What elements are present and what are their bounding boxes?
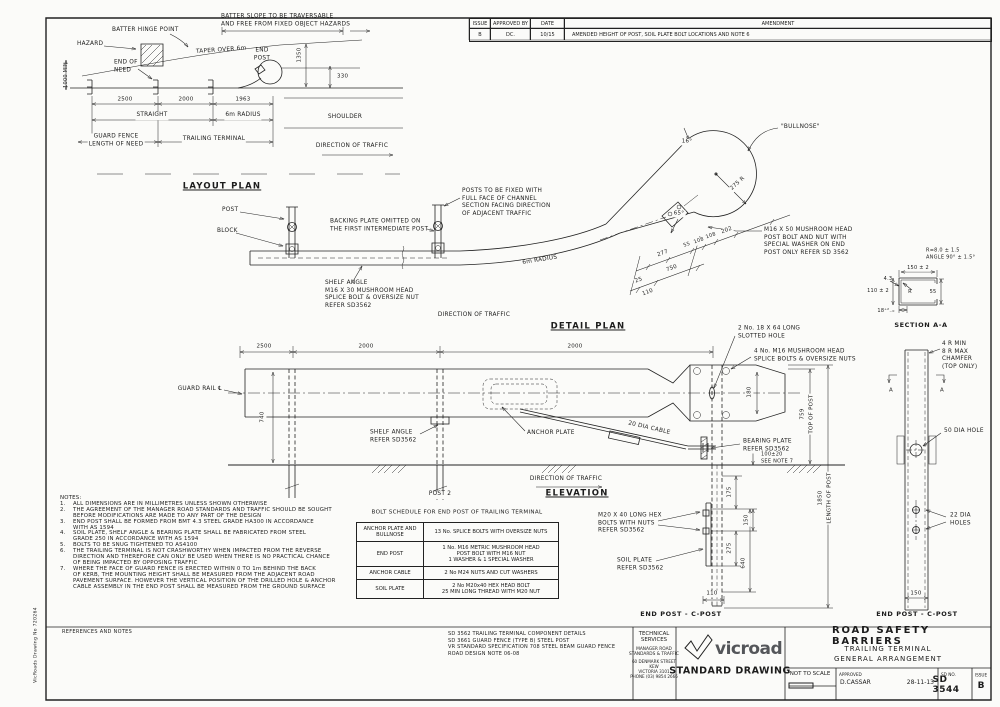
end-post-right-label-2: A [940, 387, 944, 394]
bolt-component: SOIL PLATE [357, 580, 424, 599]
note-item-2: 2.THE AGREEMENT OF THE MANAGER ROAD STAN… [60, 508, 360, 520]
bolt-schedule-table: ANCHOR PLATE AND BULLNOSE13 No. SPLICE B… [356, 522, 559, 599]
issue-value: B [470, 29, 491, 40]
vicroads-logo: vicroads [684, 634, 782, 660]
issue-header: ISSUE [470, 19, 491, 29]
elevation-label-3: GUARD RAIL ℄ [178, 386, 222, 394]
vicroads-check-icon [685, 635, 712, 659]
approved-label: APPROVED [839, 672, 862, 677]
elevation-label-25: 1850 [817, 490, 824, 507]
bolt-schedule-row-4: SOIL PLATE2 No M20x40 HEX HEAD BOLT 25 M… [357, 580, 559, 599]
standard-drawing-label: STANDARD DRAWING [669, 666, 791, 677]
elevation-label-21: 150 [743, 513, 750, 526]
vicroads-brand-text: vicroads [715, 639, 782, 659]
references-label: REFERENCES AND NOTES [62, 629, 132, 635]
section-aa-label-7: SECTION A-A [894, 321, 947, 329]
layout-plan-label-13: 6m RADIUS [224, 112, 261, 120]
layout-plan-label-0: BATTER SLOPE TO BE TRAVERSABLE AND FREE … [221, 13, 350, 28]
drawing-series-title: ROAD SAFETY BARRIERS [832, 625, 944, 647]
end-post-right-label-4: 22 DIA HOLES [950, 512, 971, 527]
elevation-label-17: ELEVATION [545, 488, 608, 499]
elevation-label-2: 2000 [567, 343, 584, 350]
detail-plan-label-2: BACKING PLATE OMITTED ON THE FIRST INTER… [330, 218, 428, 233]
layout-plan-label-4: END POST [254, 47, 270, 62]
references-list: SD 3562 TRAILING TERMINAL COMPONENT DETA… [448, 631, 615, 657]
approved-by: D.CASSAR [840, 679, 871, 686]
approved-by-value: DC. [491, 29, 531, 40]
notes-block: NOTES: 1.ALL DIMENSIONS ARE IN MILLIMETR… [60, 496, 360, 591]
elevation-label-12: TOP OF POST [808, 393, 815, 434]
end-post-right-label-0: 4 R MIN 8 R MAX CHAMFER (TOP ONLY) [942, 341, 977, 371]
side-drawing-number: VicRoads Drawing No 720264 [34, 607, 39, 683]
section-aa-label-1: 150 ± 2 [906, 265, 930, 272]
elevation-label-26: LENGTH OF POST [826, 471, 833, 524]
end-post-right-label-5: 150 [909, 590, 922, 597]
elevation-label-1: 2000 [358, 343, 375, 350]
layout-plan-label-10: 2000 [178, 96, 195, 103]
layout-plan-label-11: 1963 [235, 96, 252, 103]
drawing-sheet: BATTER SLOPE TO BE TRAVERSABLE AND FREE … [0, 0, 1000, 707]
bolt-component: END POST [357, 542, 424, 567]
bolt-component: ANCHOR PLATE AND BULLNOSE [357, 523, 424, 542]
detail-plan-label-0: POST [222, 207, 238, 215]
bolt-schedule-row-3: ANCHOR CABLE2 No M24 NUTS AND CUT WASHER… [357, 567, 559, 580]
amendment-header: AMENDMENT [565, 19, 991, 29]
issue-value-titleblock: B [978, 681, 985, 691]
elevation-label-19: SOIL PLATE REFER SD3562 [617, 557, 663, 572]
note-text: THE TRAILING TERMINAL IS NOT CRASHWORTHY… [73, 549, 330, 567]
elevation-label-20: 175 [726, 485, 733, 498]
elevation-label-14: 100±20 SEE NOTE 7 [760, 452, 794, 465]
layout-plan-label-6: 1000 MIN [63, 62, 70, 88]
layout-plan-label-7: 1350 [296, 47, 303, 64]
scale-label: NOT TO SCALE [790, 671, 831, 677]
layout-plan-label-14: SHOULDER [328, 114, 362, 122]
section-aa-label-6: 18⁺²₋₀ [876, 308, 895, 315]
elevation-label-0: 2500 [256, 343, 273, 350]
note-item-7: 7.WHERE THE FACE OF GUARD FENCE IS ERECT… [60, 567, 360, 591]
org-department: MANAGER ROAD STANDARDS & TRAFFIC [629, 647, 679, 657]
note-number: 7. [60, 567, 73, 591]
elevation-label-4: 740 [259, 410, 266, 423]
bolt-spec: 1 No. M16 METRIC MUSHROOM HEAD POST BOLT… [424, 542, 559, 567]
end-post-right-label-1: A [889, 387, 893, 394]
note-number: 2. [60, 508, 73, 520]
section-aa-label-0: R=8.0 ± 1.5 ANGLE 90° ± 1.5° [926, 248, 975, 261]
layout-plan-label-1: BATTER HINGE POINT [112, 27, 179, 35]
section-aa-label-2: 4.3 [884, 276, 893, 283]
elevation-label-10: 180 [746, 385, 753, 398]
layout-plan-label-16: TRAILING TERMINAL [182, 136, 246, 144]
issue-table: ISSUE APPROVED BY DATE AMENDMENT B DC. 1… [469, 18, 992, 42]
bullnose-label-1: 16° [681, 138, 694, 145]
layout-plan-label-12: STRAIGHT [135, 112, 168, 120]
note-number: 6. [60, 549, 73, 567]
section-aa-label-4: R [908, 289, 912, 296]
elevation-label-24: 110 [705, 590, 718, 597]
bullnose-label-0: "BULLNOSE" [781, 124, 820, 132]
layout-plan-label-17: DIRECTION OF TRAFFIC [316, 143, 388, 151]
bolt-spec: 2 No M20x40 HEX HEAD BOLT 25 MIN LONG TH… [424, 580, 559, 599]
bolt-schedule-row-1: ANCHOR PLATE AND BULLNOSE13 No. SPLICE B… [357, 523, 559, 542]
org-name: TECHNICAL SERVICES [639, 631, 670, 644]
elevation-label-5: SHELF ANGLE REFER SD3562 [370, 429, 416, 444]
elevation-label-27: END POST - C-POST [640, 610, 721, 618]
elevation-label-23: 640 [740, 556, 747, 569]
elevation-label-22: 275 [726, 541, 733, 554]
detail-plan-label-3: POSTS TO BE FIXED WITH FULL FACE OF CHAN… [462, 188, 551, 218]
note-text: WHERE THE FACE OF GUARD FENCE IS ERECTED… [73, 567, 336, 591]
bolt-spec: 2 No M24 NUTS AND CUT WASHERS [424, 567, 559, 580]
detail-plan-label-6: DIRECTION OF TRAFFIC [438, 312, 510, 320]
end-post-right-label-6: END POST - C-POST [876, 610, 957, 618]
section-aa-label-5: 55 [929, 289, 938, 296]
issue-label: ISSUE [975, 673, 987, 678]
elevation-label-9: 4 No. M16 MUSHROOM HEAD SPLICE BOLTS & O… [753, 348, 857, 363]
bolt-schedule-row-2: END POST1 No. M16 METRIC MUSHROOM HEAD P… [357, 542, 559, 567]
layout-plan-label-9: 2500 [117, 96, 134, 103]
bolt-spec: 13 No. SPLICE BOLTS WITH OVERSIZE NUTS [424, 523, 559, 542]
elevation-label-8: 2 No. 18 X 64 LONG SLOTTED HOLE [737, 325, 801, 340]
detail-plan-label-1: BLOCK [217, 228, 238, 236]
elevation-label-15: DIRECTION OF TRAFFIC [530, 476, 602, 484]
approved-date: 28-11-13 [907, 679, 934, 686]
date-value: 10/15 [531, 29, 565, 40]
bolt-schedule-title: BOLT SCHEDULE FOR END POST OF TRAILING T… [372, 509, 543, 516]
layout-plan-label-18: LAYOUT PLAN [183, 181, 261, 192]
section-aa-label-3: 110 ± 2 [866, 288, 890, 295]
bullnose-label-2: 65° [673, 210, 686, 217]
layout-plan-label-5: END OF NEED [114, 59, 138, 74]
elevation-label-11: 759 [799, 407, 806, 420]
date-header: DATE [531, 19, 565, 29]
note-item-6: 6.THE TRAILING TERMINAL IS NOT CRASHWORT… [60, 549, 360, 567]
sd-number: SD 3544 [933, 675, 978, 695]
detail-plan-label-7: DETAIL PLAN [551, 321, 626, 332]
detail-plan-label-4: SHELF ANGLE M16 X 30 MUSHROOM HEAD SPLIC… [325, 280, 419, 310]
layout-plan-label-8: 330 [337, 73, 348, 80]
amendment-value: AMENDED HEIGHT OF POST, SOIL PLATE BOLT … [565, 29, 991, 40]
bolt-component: ANCHOR CABLE [357, 567, 424, 580]
note-text: THE AGREEMENT OF THE MANAGER ROAD STANDA… [73, 508, 332, 520]
elevation-label-6: ANCHOR PLATE [527, 430, 575, 438]
elevation-label-16: POST 2 [428, 491, 452, 499]
bullnose-label-4: M16 X 50 MUSHROOM HEAD POST BOLT AND NUT… [764, 227, 853, 257]
drawing-subtitle-2: GENERAL ARRANGEMENT [834, 655, 942, 663]
layout-plan-label-2: HAZARD [77, 41, 103, 49]
drawing-subtitle-1: TRAILING TERMINAL [844, 645, 931, 653]
layout-plan-label-15: GUARD FENCE LENGTH OF NEED [88, 133, 145, 148]
end-post-right-label-3: 50 DIA HOLE [944, 428, 984, 436]
elevation-label-18: M20 X 40 LONG HEX BOLTS WITH NUTS REFER … [598, 513, 662, 536]
approved-by-header: APPROVED BY [491, 19, 531, 29]
